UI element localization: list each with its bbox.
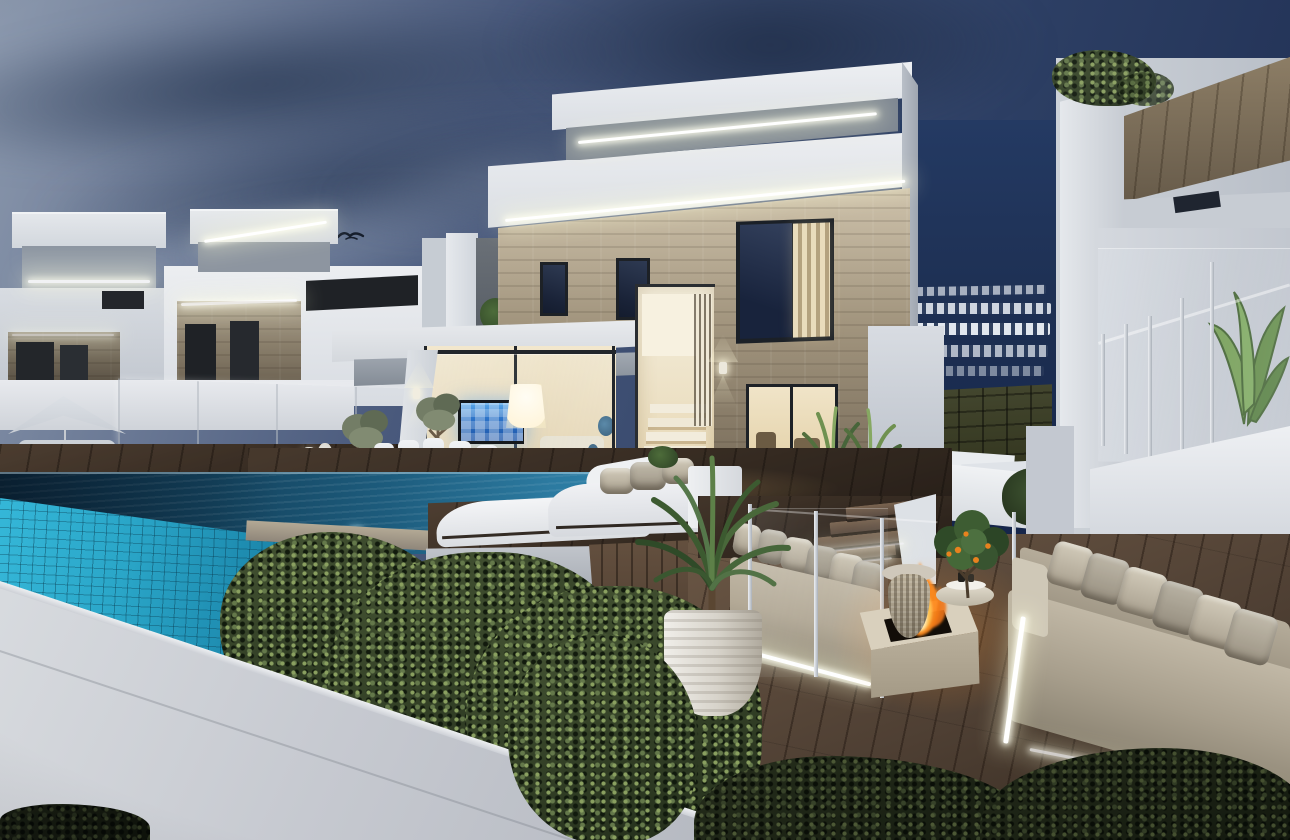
villa-dusk-rendering [0, 0, 1290, 840]
vignette-overlay [0, 0, 1290, 840]
